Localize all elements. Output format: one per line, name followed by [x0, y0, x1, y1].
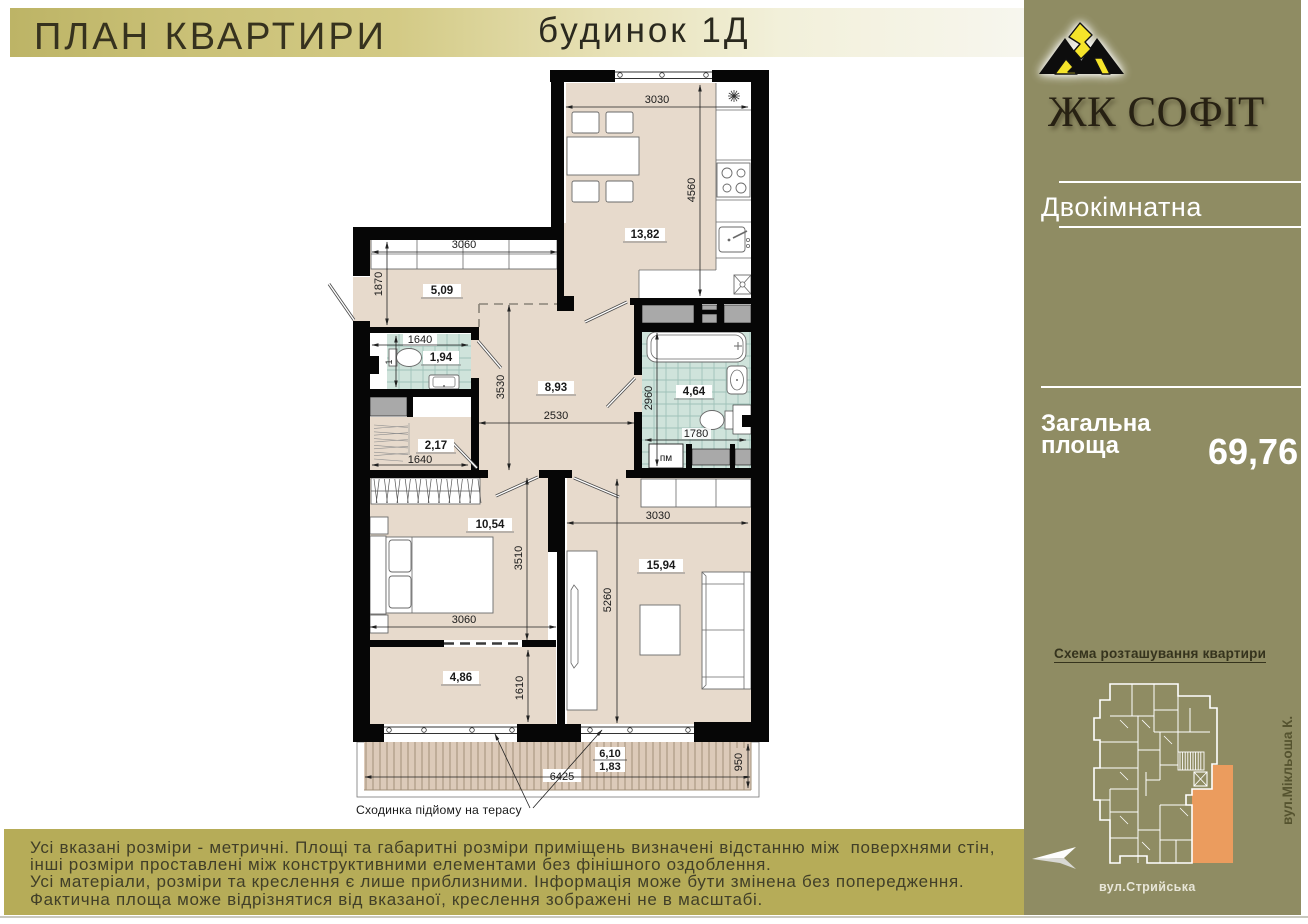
svg-text:3060: 3060 — [452, 614, 476, 626]
svg-text:2,17: 2,17 — [425, 440, 447, 452]
svg-text:6425: 6425 — [550, 771, 574, 783]
svg-text:1,94: 1,94 — [430, 352, 453, 364]
svg-text:4,64: 4,64 — [683, 386, 706, 398]
svg-text:1640: 1640 — [408, 334, 432, 346]
svg-text:3030: 3030 — [645, 94, 669, 106]
svg-text:2530: 2530 — [544, 410, 568, 422]
svg-text:6,10: 6,10 — [599, 748, 620, 760]
svg-text:пм: пм — [660, 453, 672, 464]
svg-text:1610: 1610 — [514, 676, 526, 700]
svg-text:1: 1 — [384, 359, 394, 364]
svg-text:3510: 3510 — [513, 546, 525, 570]
svg-text:3030: 3030 — [646, 510, 670, 522]
svg-text:4,86: 4,86 — [450, 672, 472, 684]
svg-text:2960: 2960 — [643, 386, 655, 410]
svg-text:1780: 1780 — [684, 428, 708, 440]
svg-text:1870: 1870 — [373, 272, 385, 296]
svg-text:3530: 3530 — [495, 375, 507, 399]
svg-text:950: 950 — [733, 753, 745, 771]
svg-text:5,09: 5,09 — [431, 285, 453, 297]
svg-text:Сходинка підйому на терасу: Сходинка підйому на терасу — [356, 803, 522, 817]
svg-text:8,93: 8,93 — [545, 382, 567, 394]
svg-text:10,54: 10,54 — [476, 519, 505, 531]
svg-text:1640: 1640 — [408, 454, 432, 466]
svg-text:1,83: 1,83 — [599, 761, 620, 773]
svg-text:4560: 4560 — [686, 178, 698, 202]
svg-text:13,82: 13,82 — [631, 229, 660, 241]
svg-text:5260: 5260 — [602, 588, 614, 612]
svg-text:3060: 3060 — [452, 239, 476, 251]
svg-text:15,94: 15,94 — [647, 560, 676, 572]
